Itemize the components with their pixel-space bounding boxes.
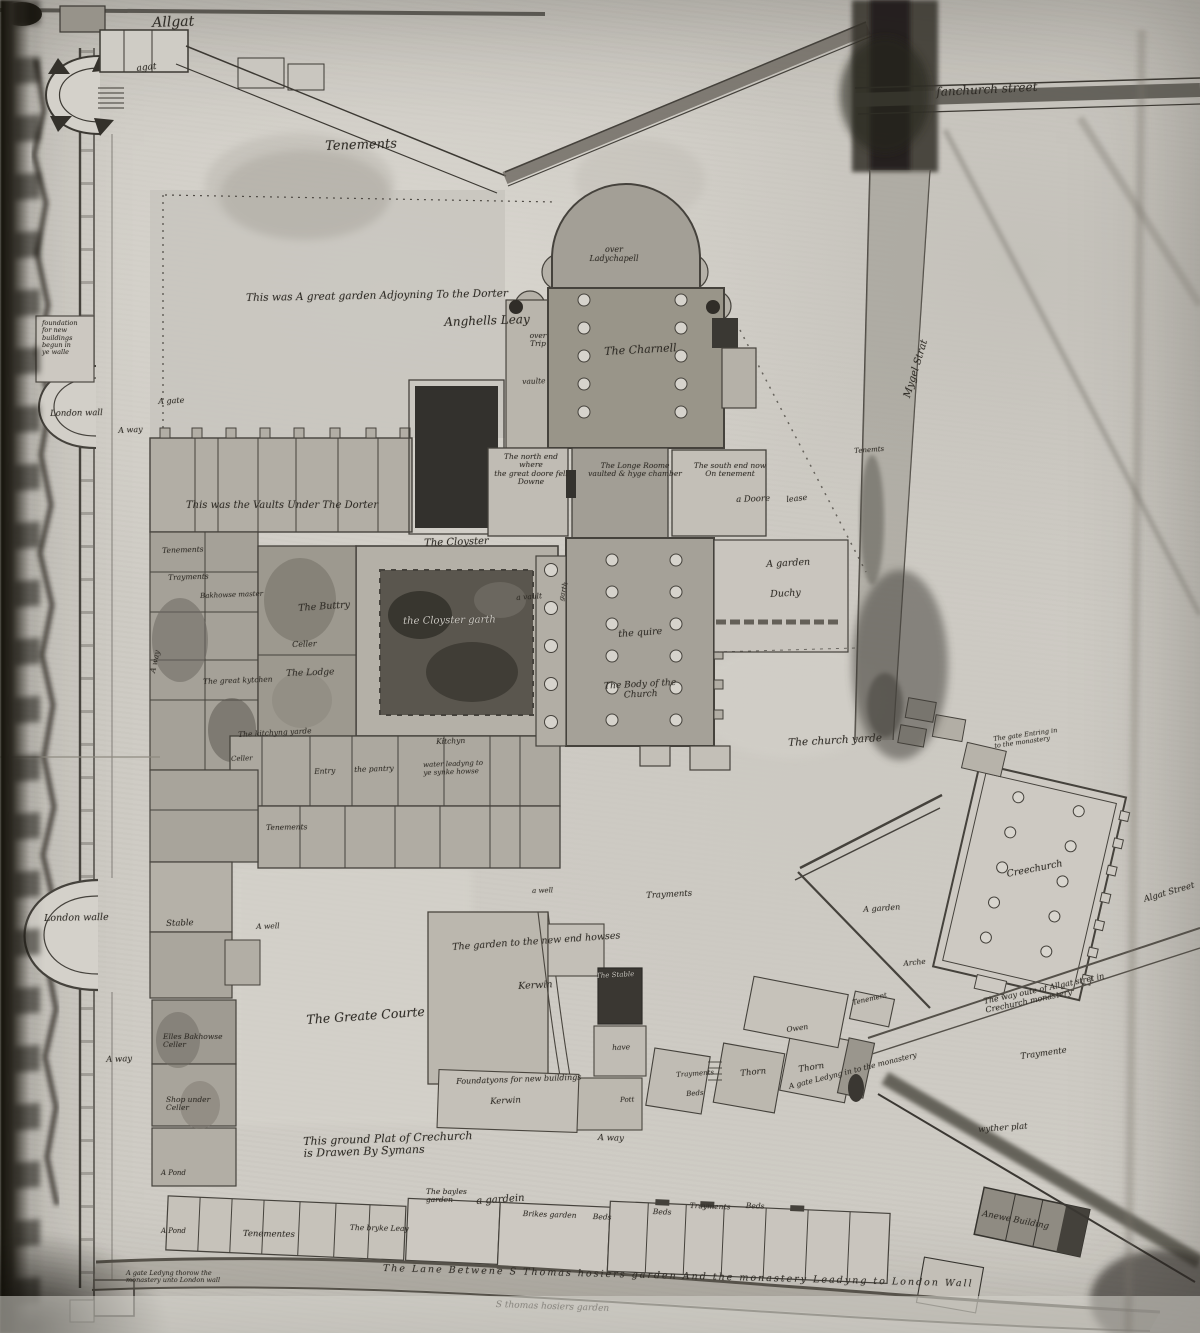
label-trayments-mid: Trayments xyxy=(646,890,692,902)
label-garth-side: garth xyxy=(558,581,571,602)
label-a-vault: a vault xyxy=(516,592,542,602)
label-bayles-garden: The bayles garden xyxy=(426,1188,482,1205)
label-have: have xyxy=(612,1043,630,1052)
label-longe-roome: The Longe Roome vaulted & hyge chamber xyxy=(586,462,684,479)
label-tenementes-row: Tenementes xyxy=(243,1230,295,1240)
label-a-way-1: A way xyxy=(118,426,143,436)
label-beds-1: Beds xyxy=(593,1213,612,1222)
label-tenements-left-1: Tenements xyxy=(162,546,204,556)
label-kerwin-2: Kerwin xyxy=(490,1096,521,1107)
label-great-kytchen: The great kytchen xyxy=(203,676,273,687)
label-foundations-new: Foundatyons for new buildings xyxy=(456,1074,582,1087)
label-a-garden-2: A garden xyxy=(863,903,901,915)
label-north-end: The north end where the great doore fell… xyxy=(494,453,568,487)
label-agat: agat xyxy=(136,62,157,74)
label-pond-1: A Pond xyxy=(161,1170,186,1178)
label-great-garden: This was A great garden Adjoyning To the… xyxy=(246,288,508,304)
label-algat-street: Algat Street xyxy=(1143,882,1196,906)
label-beds-2: Beds xyxy=(653,1208,672,1217)
label-kerwin-1: Kerwin xyxy=(518,980,553,992)
label-the-charnell: The Charnell xyxy=(604,342,677,358)
label-a-doore: a Doore xyxy=(736,495,770,506)
label-the-stable: The Stable xyxy=(596,971,635,981)
label-a-gardein: a gardein xyxy=(476,1193,525,1208)
label-lane-text: The Lane Betwene S Thomas hosiers garden… xyxy=(383,1264,974,1290)
label-pott: Pott xyxy=(620,1097,635,1105)
label-a-way-2: A way xyxy=(106,1055,132,1065)
label-fanchurch-street: fanchurch street xyxy=(936,81,1038,100)
label-entry: Entry xyxy=(314,767,336,776)
label-celler-1: Celler xyxy=(292,640,317,650)
label-mygel-strat: Mygel Strat xyxy=(902,338,930,399)
label-tenements-row2: Tenements xyxy=(266,823,308,832)
label-london-wall-1: London wall xyxy=(50,409,103,419)
label-gate-entring: The gate Entring in to the monastery xyxy=(993,726,1066,750)
label-greate-courte: The Greate Courte xyxy=(306,1005,425,1027)
label-traymente-right: Traymente xyxy=(1020,1047,1067,1063)
label-tenemts-right: Tenemts xyxy=(854,446,884,456)
label-church-yarde: The church yarde xyxy=(788,733,882,750)
label-thorn-1: Thorn xyxy=(740,1067,767,1079)
label-bryke-leay: The bryke Leay xyxy=(350,1224,409,1233)
label-owen: Owen xyxy=(786,1023,809,1034)
label-over-ladychapell: over Ladychapell xyxy=(583,246,645,264)
label-trayments-diag: Trayments xyxy=(676,1069,714,1079)
label-anghells-leay: Anghells Leay xyxy=(444,313,530,329)
label-the-pantry: the pantry xyxy=(354,765,394,775)
label-brikes-garden: Brikes garden xyxy=(523,1210,577,1220)
photo-mount-strip xyxy=(0,1296,1200,1333)
label-water-synke: water leadyng to ye synke howse xyxy=(423,759,496,777)
label-shop-under: Shop under Celler xyxy=(166,1096,238,1113)
label-stable-west: Stable xyxy=(166,919,194,929)
label-elles-bakhowse: Elles Bakhowse Celler xyxy=(163,1033,235,1050)
label-vaults-under-dorter: This was the Vaults Under The Dorter xyxy=(186,500,378,511)
label-tenement-diag: Tenement xyxy=(852,992,888,1008)
label-a-way-road: A way xyxy=(598,1134,624,1144)
label-london-walle-2: London walle xyxy=(44,913,109,925)
label-celler-2: Celler xyxy=(231,755,253,764)
label-ground-plat-title: This ground Plat of Crechurch is Drawen … xyxy=(303,1130,473,1161)
label-the-cloyster: The Cloyster xyxy=(424,536,489,549)
labels-layer: AllgatagatTenementsfanchurch streetThis … xyxy=(0,0,1200,1333)
label-body-of-church: The Body of the Church xyxy=(598,678,683,703)
label-the-quire: the quire xyxy=(618,627,663,641)
label-way-oute: The way oute of Allgat stret in Crechurc… xyxy=(983,970,1118,1015)
label-allgat: Allgat xyxy=(152,15,195,32)
label-beds-diag: Beds xyxy=(686,1090,704,1099)
label-a-well-2: a well xyxy=(532,887,553,896)
label-bakhowse-master: Bakhowse master xyxy=(200,591,263,601)
label-beds-3: Beds xyxy=(746,1202,765,1211)
label-wyther-plat: wyther plat xyxy=(978,1123,1028,1136)
label-creechurch: Creechurch xyxy=(1006,859,1064,880)
label-duchy: Duchy xyxy=(770,588,801,600)
label-foundation-note: foundation for new buildings begun in ye… xyxy=(42,320,92,356)
label-a-gate-left: A gate xyxy=(158,397,185,407)
label-trayments-left: Trayments xyxy=(168,573,209,583)
photo-left-edge-texture xyxy=(14,0,40,1333)
label-vaulte: vaulte xyxy=(522,377,546,386)
label-south-end: The south end now On tenement xyxy=(686,462,774,479)
label-a-well-1: A well xyxy=(256,922,280,931)
label-a-way-rot: A way xyxy=(149,650,162,674)
label-lease: lease xyxy=(786,494,808,505)
label-tenements-top: Tenements xyxy=(325,137,397,154)
label-arche: Arche xyxy=(903,958,926,969)
label-the-lodge: The Lodge xyxy=(286,667,335,679)
label-kitchyng-yarde: The kitchyng yarde xyxy=(238,727,312,739)
label-anewe-building: Anewe Building xyxy=(981,1210,1049,1232)
label-cloyster-garth: the Cloyster garth xyxy=(403,614,496,627)
label-kitchyn: Kitchyn xyxy=(436,737,465,746)
label-over-trip: over Trip xyxy=(523,332,553,349)
label-garden-new-houses: The garden to the new end howses xyxy=(452,931,621,953)
label-the-buttry: The Buttry xyxy=(298,600,350,614)
label-a-garden-duchy: A garden xyxy=(766,558,810,571)
label-trayments-row: Trayments xyxy=(690,1202,731,1212)
photographed-plan: AllgatagatTenementsfanchurch streetThis … xyxy=(0,0,1200,1333)
